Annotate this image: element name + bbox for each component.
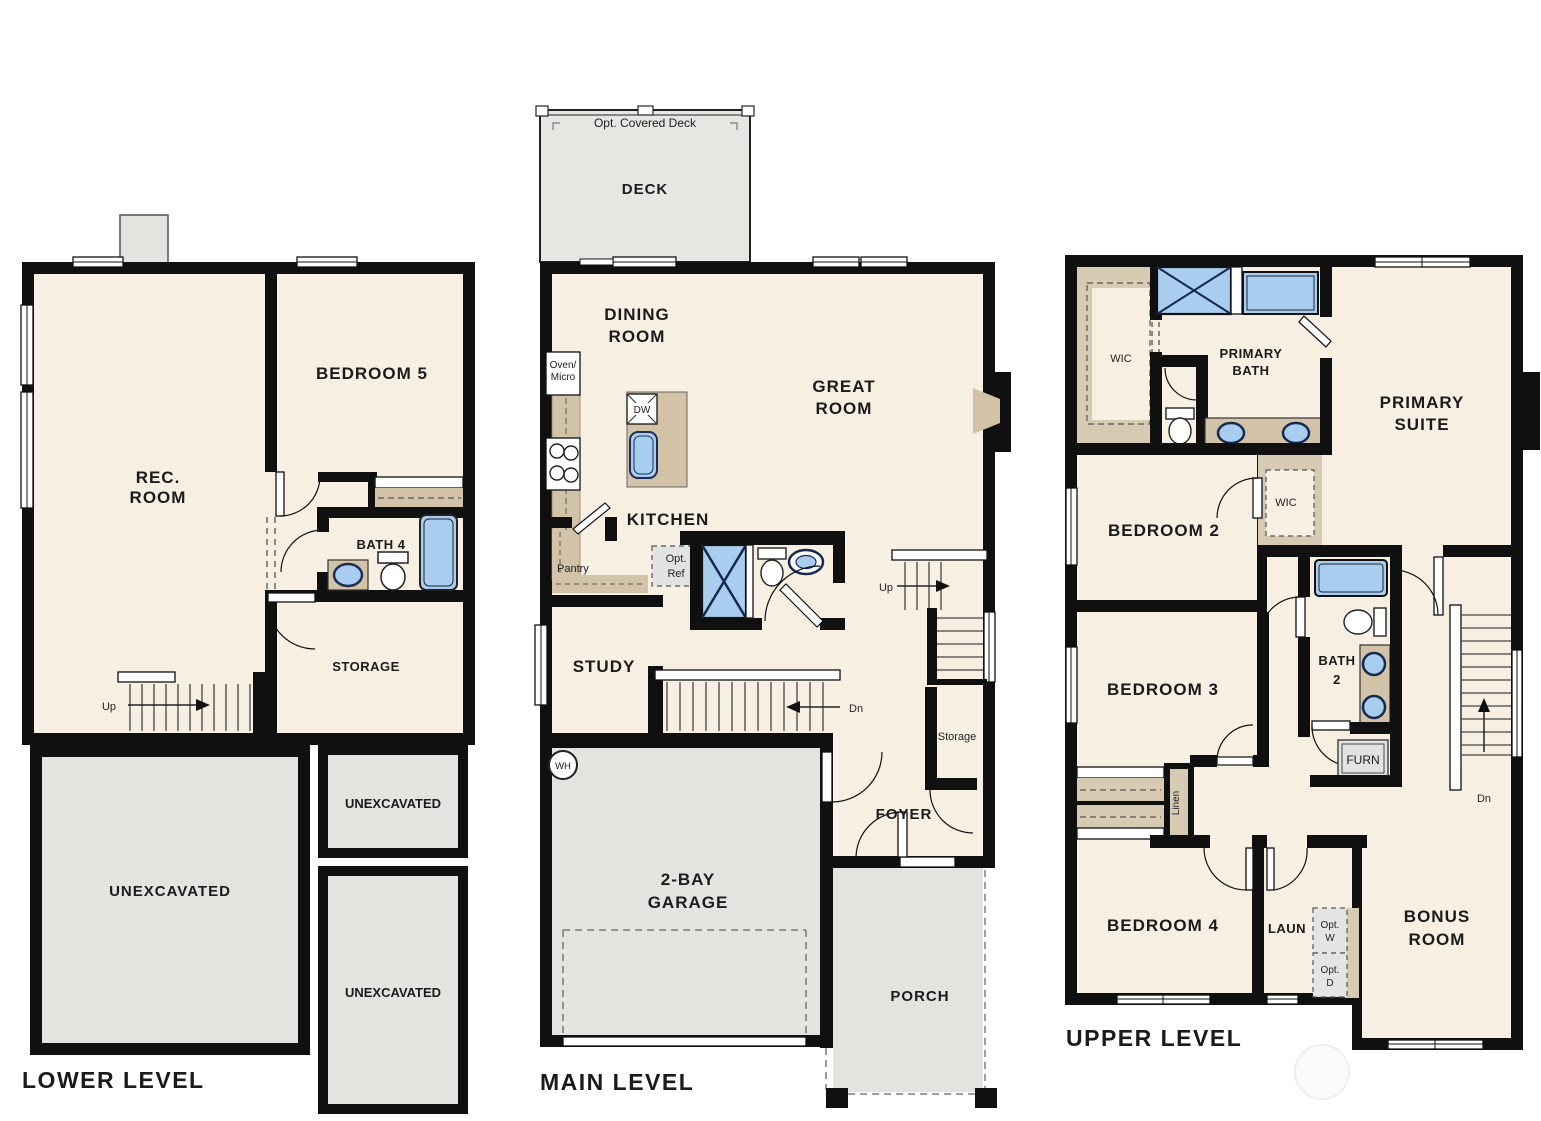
cooktop [546, 438, 580, 490]
great-room-label-1: GREAT [812, 377, 875, 396]
garage-label-1: 2-BAY [661, 870, 715, 889]
stair-rail [892, 550, 987, 560]
toilet [1169, 418, 1191, 444]
floor-plan-drawing: Up REC. ROOM BEDROOM 5 BATH 4 STORAGE UN… [0, 0, 1541, 1121]
hall-closets: Linen [1077, 763, 1194, 843]
foyer-label: FOYER [876, 806, 933, 823]
dw-label: DW [634, 405, 651, 416]
laundry-label: LAUN [1268, 921, 1306, 936]
door-leaf [1312, 721, 1350, 730]
deck: Opt. Covered Deck DECK [536, 106, 754, 262]
oven-label-2: Micro [551, 372, 576, 383]
unexcavated-areas: UNEXCAVATED UNEXCAVATED UNEXCAVATED [30, 745, 468, 1114]
garage-door [563, 1037, 806, 1046]
chimney-chase [1523, 372, 1540, 450]
door-leaf [1246, 848, 1253, 890]
door-leaf [1253, 478, 1262, 518]
toilet [761, 560, 783, 586]
rec-room-label-2: ROOM [130, 488, 187, 507]
wh-label: WH [555, 761, 571, 772]
door-leaf [1217, 757, 1253, 765]
primary-suite-label-2: SUITE [1394, 415, 1449, 434]
opt-w-label-1: Opt. [1321, 920, 1340, 931]
kitchen-label: KITCHEN [627, 510, 710, 529]
watermark-circle [1295, 1045, 1349, 1099]
bedroom4-label: BEDROOM 4 [1107, 916, 1219, 935]
stair-up-label: Up [102, 701, 116, 713]
bath2-label-2: 2 [1333, 672, 1341, 687]
study-label: STUDY [573, 657, 636, 676]
unexcavated-label: UNEXCAVATED [109, 883, 231, 900]
opt-d-label-2: D [1326, 978, 1333, 989]
toilet [381, 564, 405, 590]
chimney [120, 215, 168, 267]
stair-rail [118, 672, 175, 682]
toilet-tank [758, 548, 786, 559]
stair-dn-label: Dn [1477, 793, 1491, 805]
closet-shelf [375, 477, 463, 488]
sink [1363, 696, 1385, 718]
storage-main-label: Storage [938, 731, 977, 743]
door-leaf [1434, 557, 1443, 615]
garage-label-2: GARAGE [648, 893, 729, 912]
front-door-opening [900, 857, 955, 867]
bedroom3-label: BEDROOM 3 [1107, 680, 1219, 699]
linen-label: Linen [1171, 791, 1182, 815]
deck-label: DECK [622, 181, 669, 198]
stair-rail [1450, 605, 1461, 790]
bonus-label-2: ROOM [1409, 930, 1466, 949]
primary-bath-label-1: PRIMARY [1220, 346, 1283, 361]
lower-level-plan: Up REC. ROOM BEDROOM 5 BATH 4 STORAGE UN… [21, 215, 475, 1114]
opt-ref-label-1: Opt. [666, 553, 687, 565]
great-room-label-2: ROOM [816, 399, 873, 418]
unexcavated-label: UNEXCAVATED [345, 985, 441, 1000]
opt-w-label-2: W [1325, 933, 1335, 944]
sink [1283, 423, 1309, 443]
bath4-label: BATH 4 [357, 537, 406, 552]
main-level-plan: Opt. Covered Deck DECK [535, 106, 1011, 1108]
dining-label-1: DINING [604, 305, 670, 324]
pantry-label: Pantry [557, 563, 589, 575]
laundry-appliances: Opt. W Opt. D [1313, 908, 1359, 998]
opt-ref-label-2: Ref [667, 568, 685, 580]
garage-door-leaf [822, 752, 832, 802]
toilet [1344, 610, 1372, 634]
toilet-tank [1374, 608, 1386, 636]
lower-level-title: LOWER LEVEL [22, 1067, 205, 1093]
bathtub [1243, 272, 1318, 314]
toilet-tank [378, 552, 408, 563]
bath2-label-1: BATH [1318, 653, 1355, 668]
door-leaf [276, 472, 284, 516]
door-leaf [1267, 848, 1274, 890]
upper-level-plan: WIC PRIMARY BATH [1065, 255, 1540, 1051]
unexcavated-label: UNEXCAVATED [345, 796, 441, 811]
stair-dn-label: Dn [849, 703, 863, 715]
stair-up-label: Up [879, 582, 893, 594]
bonus-label-1: BONUS [1404, 907, 1470, 926]
door-leaf [1296, 597, 1305, 637]
main-level-title: MAIN LEVEL [540, 1069, 694, 1095]
furn-label: FURN [1346, 753, 1379, 767]
storage-lower-label: STORAGE [332, 659, 400, 674]
sink [1218, 423, 1244, 443]
oven-label-1: Oven/ [550, 360, 577, 371]
bedroom2-label: BEDROOM 2 [1108, 521, 1220, 540]
sink [334, 564, 362, 586]
bathtub [420, 515, 457, 590]
upper-level-title: UPPER LEVEL [1066, 1025, 1242, 1051]
dining-label-2: ROOM [609, 327, 666, 346]
opt-d-label-1: Opt. [1321, 965, 1340, 976]
wic2-label: WIC [1275, 497, 1296, 509]
rec-room-label-1: REC. [136, 468, 181, 487]
primary-bath-label-2: BATH [1232, 363, 1269, 378]
primary-suite-label-1: PRIMARY [1380, 393, 1465, 412]
porch: PORCH [820, 868, 997, 1108]
bathtub [1315, 560, 1387, 596]
floor-plan-page: Up REC. ROOM BEDROOM 5 BATH 4 STORAGE UN… [0, 0, 1541, 1121]
primary-wic: WIC [1077, 267, 1150, 447]
deck-note: Opt. Covered Deck [594, 116, 697, 130]
porch-label: PORCH [890, 988, 949, 1005]
wic-label: WIC [1110, 353, 1131, 365]
garage-interior [552, 748, 820, 1035]
bedroom5-label: BEDROOM 5 [316, 364, 428, 383]
sink [1363, 653, 1385, 675]
bedroom2-wic: WIC [1258, 455, 1322, 545]
stair-rail [655, 670, 840, 680]
